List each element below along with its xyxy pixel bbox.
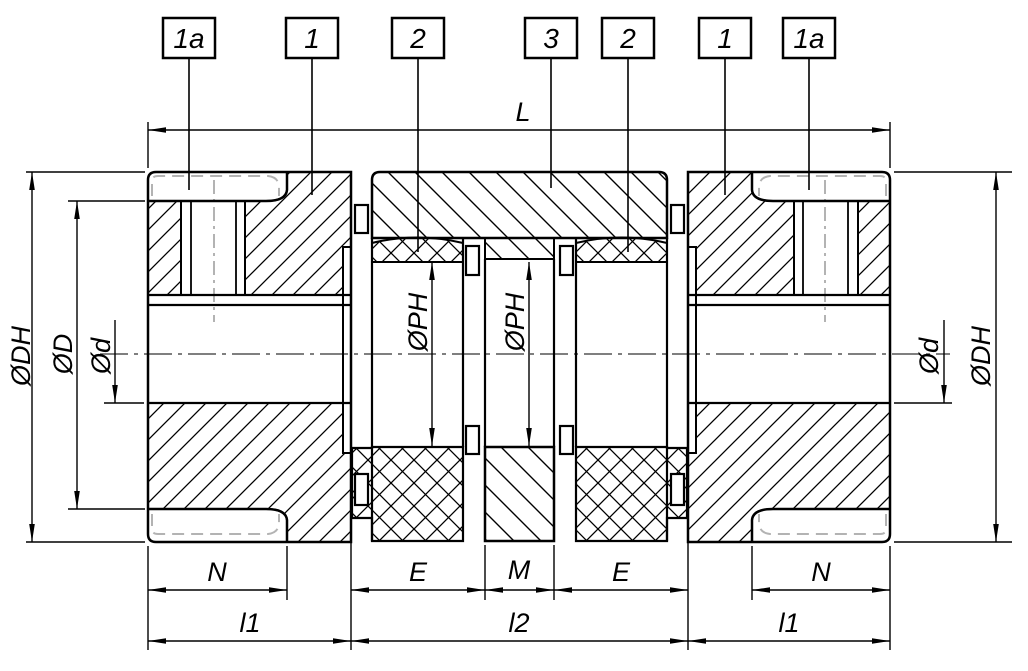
retainer-tab [466,426,479,454]
coupling-section-drawing: 1a 1 2 3 2 1 1a L ØDH ØD Ød [0,0,1028,671]
callout-label: 2 [619,23,636,54]
sleeve-bottom-block [485,447,554,541]
right-hub-hidden-edge-top [759,176,886,196]
elastomer-strip-right [576,238,667,263]
interface-tab [355,205,368,233]
callout-label: 2 [409,23,426,54]
dim-label-N-left: N [207,557,227,587]
right-hub-hatch-upper-left [688,172,794,295]
interface-tab [671,474,684,505]
dim-label-DH-left: ØDH [6,326,36,388]
right-hub-hatch-upper-right [858,201,890,295]
dim-overall-length: L [148,97,890,168]
right-hub-recess-bottom [752,509,890,542]
retainer-tab [466,246,479,275]
center-assembly [352,172,687,541]
dim-label-E-left: E [409,557,428,587]
dim-label-E-right: E [612,557,631,587]
callout-label: 1a [793,23,824,54]
sleeve-top-block [372,172,667,238]
callout-label: 3 [543,23,559,54]
sleeve-center-boss [485,238,554,259]
dim-label-N-right: N [811,557,831,587]
callout-label: 1 [717,23,733,54]
left-hub [148,172,351,542]
dim-label-M: M [508,555,531,585]
dim-label-l1-right: l1 [778,608,799,638]
left-hub-hidden-edge-bottom [152,514,279,534]
dim-label-DH-right: ØDH [966,326,996,388]
dim-label-l1-left: l1 [239,608,260,638]
interface-tab [355,474,368,505]
right-hub-hidden-edge-bottom [759,514,886,534]
dim-label-d-right: Ød [914,337,944,375]
dim-label-d-left: Ød [86,337,116,375]
dim-left-diameters: ØDH ØD Ød [6,172,145,542]
callout-label: 1a [173,23,204,54]
right-hub-hatch-lower [688,403,890,542]
dim-right-diameters: ØDH Ød [894,172,1012,542]
dim-label-D: ØD [48,334,78,376]
dim-label-PH-right: ØPH [500,292,530,352]
left-hub-recess-bottom [148,509,287,542]
left-hub-hatch-upper-right [245,172,351,295]
dim-label-l2: l2 [508,608,529,638]
interface-tab [671,205,684,233]
dim-label-PH-left: ØPH [403,292,433,352]
left-hub-hatch-lower [148,403,351,542]
left-hub-hatch-upper-left [148,201,181,295]
retainer-tab [560,246,573,275]
left-hub-hidden-edge-top [152,176,279,196]
dim-label-L: L [515,97,530,127]
retainer-tab [560,426,573,454]
callout-label: 1 [304,23,320,54]
drawing-canvas: 1a 1 2 3 2 1 1a L ØDH ØD Ød [0,0,1028,671]
right-hub [688,172,890,542]
